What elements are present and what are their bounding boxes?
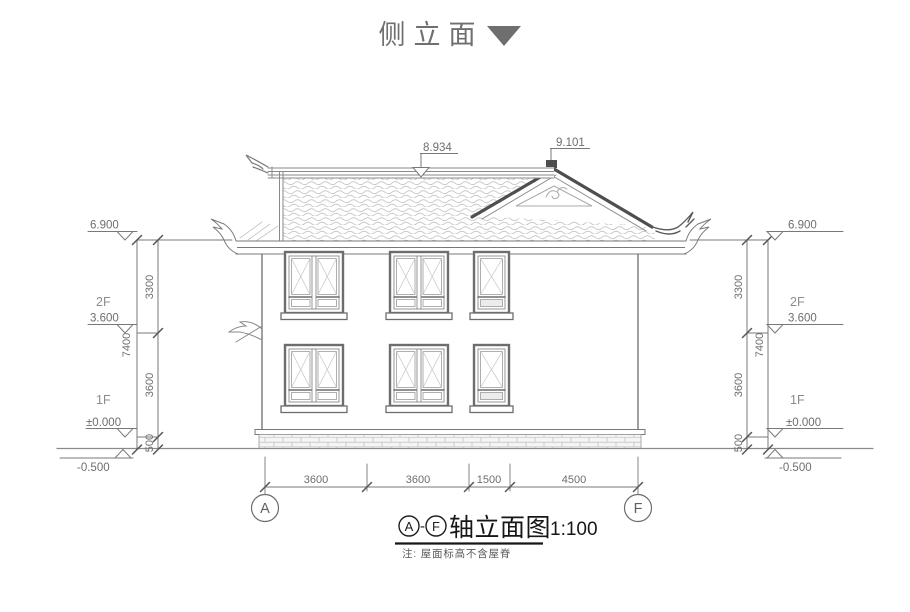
level-3600-right-label: 3.600: [788, 313, 817, 325]
level-6900-right: 6.900: [767, 220, 843, 241]
window-2f-3: [470, 252, 513, 320]
level-0000-right: ±0.000: [767, 417, 843, 437]
dim-500-left: 500: [144, 434, 156, 452]
level-minus0500-right-label: -0.500: [779, 462, 812, 474]
level-0000-left: ±0.000: [86, 417, 137, 437]
level-6900-right-label: 6.900: [788, 220, 817, 232]
page-title: 侧立面: [379, 20, 484, 50]
dim-1500: 1500: [477, 474, 501, 486]
level-minus0500-right: -0.500: [765, 450, 841, 475]
dim-4500: 4500: [562, 474, 586, 486]
ridge-elevation: 9.101: [556, 137, 585, 149]
page-header: 侧立面: [379, 20, 522, 50]
level-0000-right-label: ±0.000: [786, 417, 821, 429]
plinth-bricks: [259, 435, 641, 449]
dim-3600-b: 3600: [406, 474, 430, 486]
porch-eave-tip: [229, 322, 262, 342]
dim-500-right: 500: [733, 434, 745, 452]
drawing-title-block: A - F 轴立面图 1:100 注: 屋面标高不含屋脊: [395, 514, 598, 560]
dim-3600-right: 3600: [733, 373, 745, 397]
level-0000-left-label: ±0.000: [86, 417, 121, 429]
window-1f-2: [386, 345, 452, 413]
triangle-down-icon: [487, 26, 521, 46]
floor-label-2f-left: 2F: [96, 295, 111, 309]
floor-label-2f-right: 2F: [790, 295, 805, 309]
drawing-sheet: 侧立面: [0, 0, 910, 612]
floor-label-1f-right: 1F: [790, 393, 805, 407]
title-axis-start: A: [405, 519, 414, 534]
level-6900-left: 6.900: [88, 220, 137, 241]
eave-upturn-left: [211, 219, 238, 254]
dim-3600-a: 3600: [304, 474, 328, 486]
left-dimensions: 7400 3300 3600 500 6.900 3.600 ±0.000 -0…: [60, 220, 232, 475]
plinth-band: [255, 430, 645, 435]
dim-total-right: 7400: [754, 333, 766, 357]
dim-3300-left: 3300: [144, 275, 156, 299]
level-minus0500-left: -0.500: [60, 450, 133, 475]
window-2f-1: [281, 252, 347, 320]
ridge-finial: [546, 160, 557, 168]
level-6900-left-label: 6.900: [90, 220, 119, 232]
level-3600-right: 3.600: [767, 313, 843, 334]
right-dimensions: 7400 3300 3600 500 6.900 3.600 ±0.000 -0…: [690, 220, 843, 475]
roof-surface-elevation: 8.934: [423, 142, 452, 154]
elevation-drawing: 侧立面: [0, 0, 910, 612]
ridge-end-horn: [246, 155, 268, 173]
dim-3300-right: 3300: [733, 275, 745, 299]
level-minus0500-left-label: -0.500: [77, 462, 110, 474]
window-1f-3: [470, 345, 513, 413]
bottom-dimensions: 3600 3600 1500 4500 A F: [252, 457, 652, 522]
title-axis-separator: -: [420, 518, 425, 535]
floor-label-1f-left: 1F: [96, 393, 111, 407]
left-gable-edge: [280, 172, 284, 241]
drawing-title: 轴立面图: [449, 514, 551, 542]
level-3600-left: 3.600: [88, 313, 137, 334]
axis-bubble-a-label: A: [260, 501, 270, 517]
roof-ridge: [246, 155, 554, 178]
window-1f-1: [281, 345, 347, 413]
window-2f-2: [386, 252, 452, 320]
axis-bubble-f-label: F: [634, 501, 643, 517]
left-roof-return: [240, 222, 278, 241]
level-3600-left-label: 3.600: [90, 313, 119, 325]
dim-3600-left: 3600: [144, 373, 156, 397]
drawing-note: 注: 屋面标高不含屋脊: [402, 547, 511, 560]
gable-eave-upturn-ornament: [650, 212, 694, 234]
building-elevation: [57, 155, 873, 449]
drawing-scale: 1:100: [550, 519, 598, 540]
title-axis-end: F: [432, 519, 440, 534]
dim-total-left: 7400: [121, 333, 133, 357]
